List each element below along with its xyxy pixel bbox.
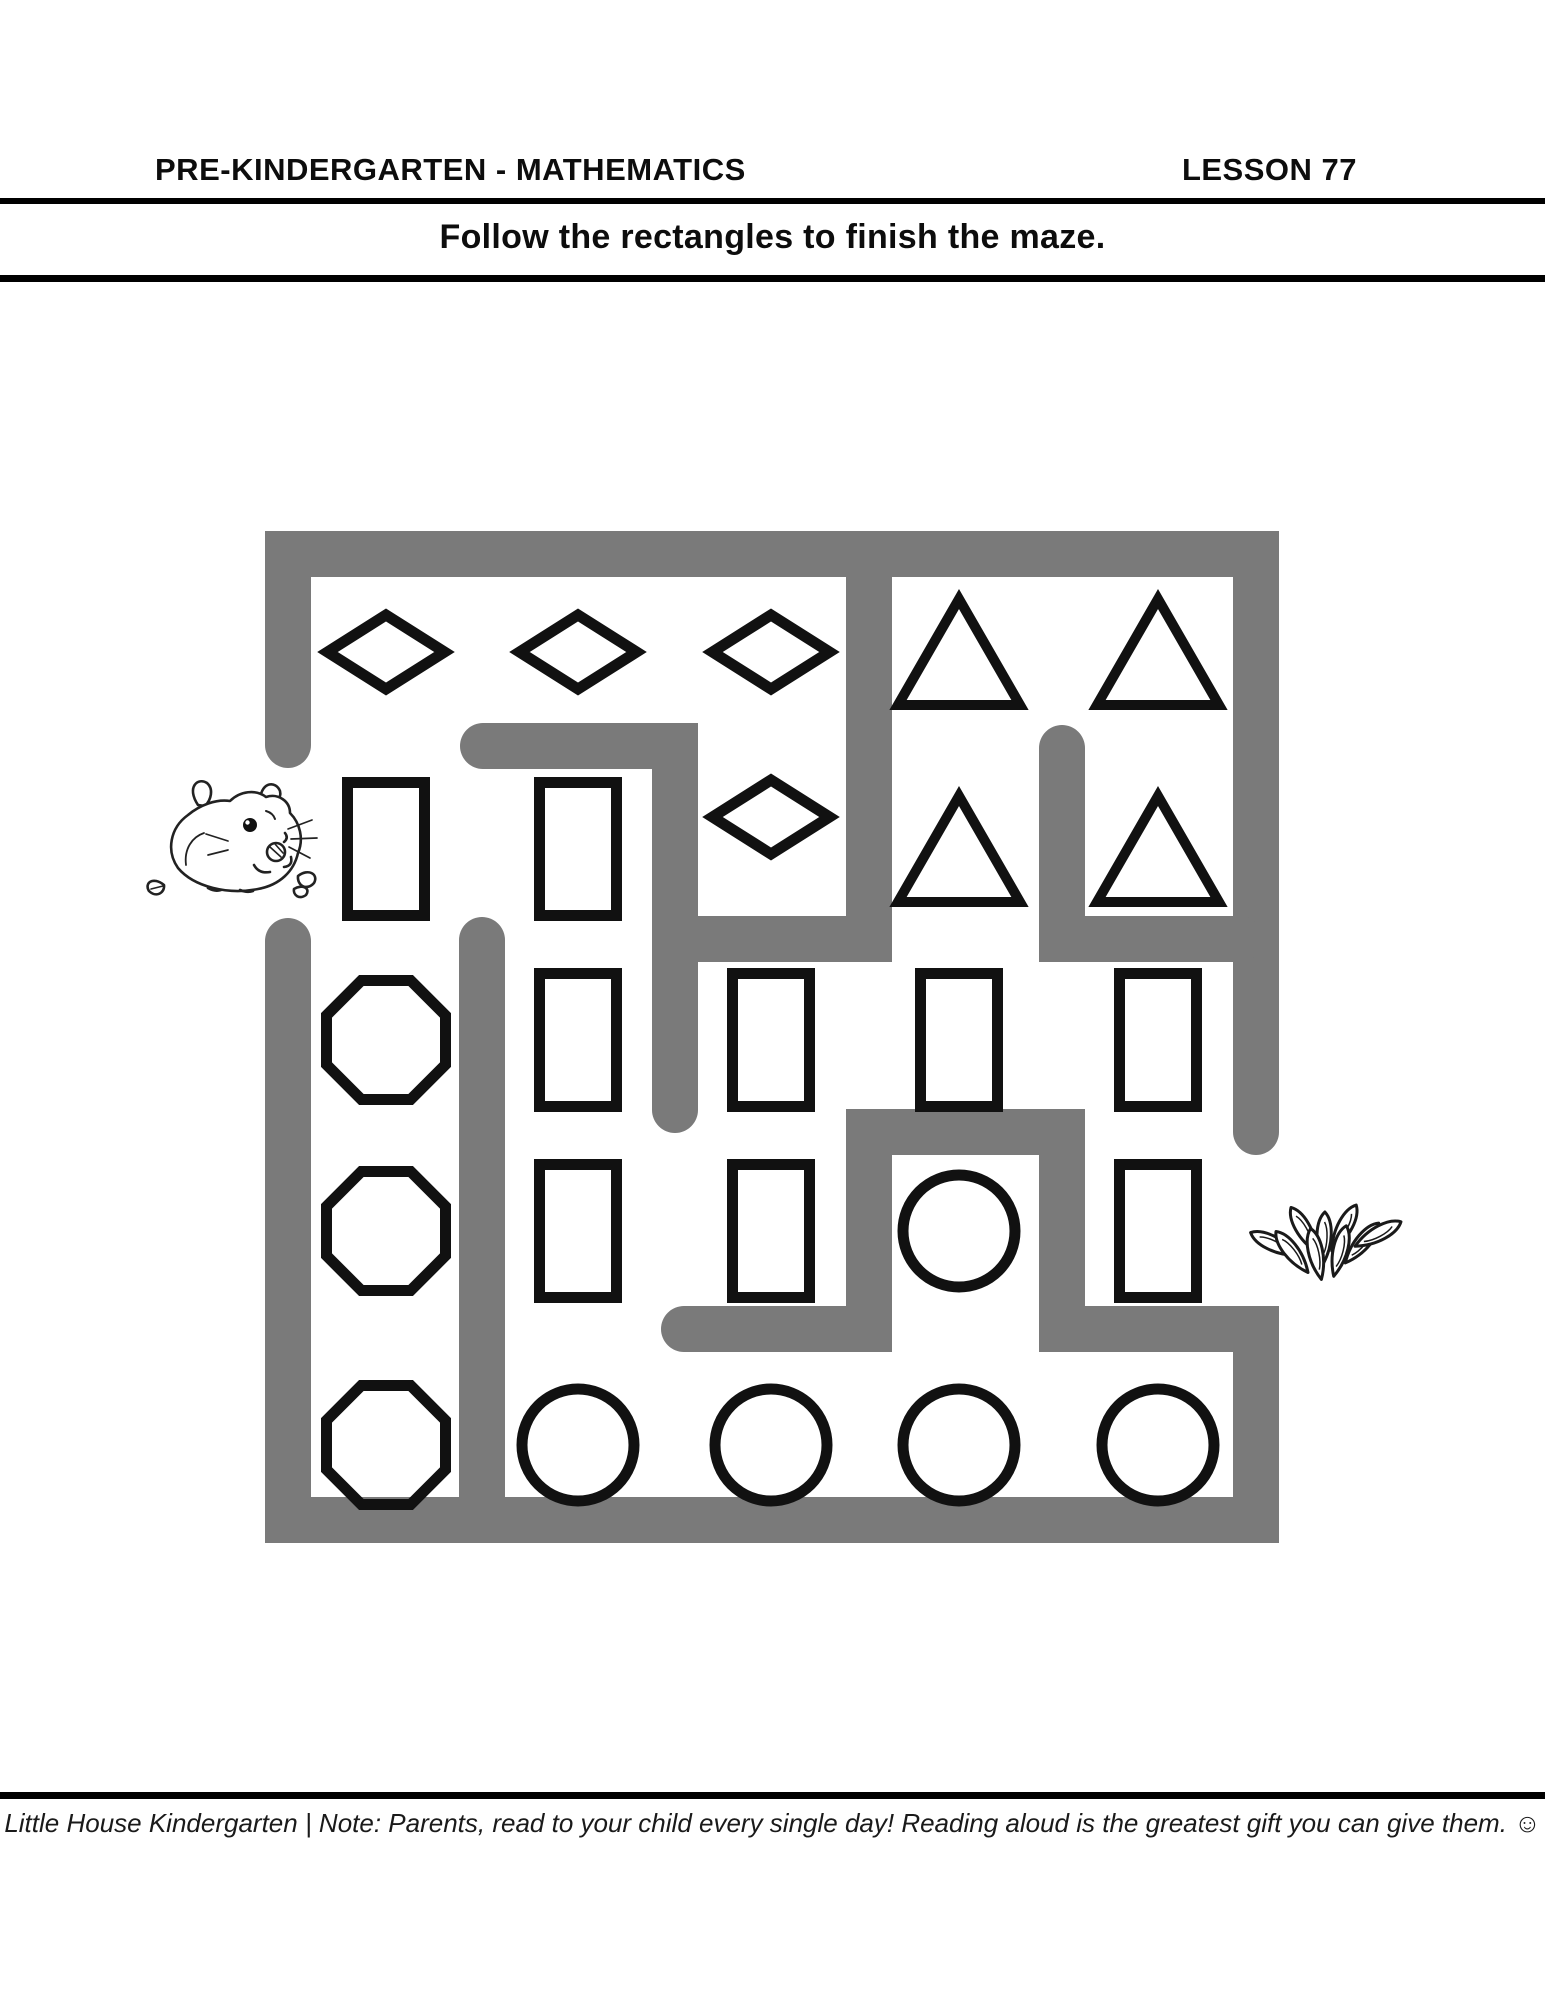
guinea-pig-icon [148,781,317,897]
maze-shape-rectangle [1120,974,1197,1107]
worksheet-page: PRE-KINDERGARTEN - MATHEMATICS LESSON 77… [0,0,1545,2000]
eye [243,818,257,832]
maze-wall-inner-top-L [483,746,675,1110]
maze-shape-circle [903,1389,1015,1501]
maze-shape-triangle [1097,599,1219,705]
body [171,792,301,891]
footer-note: Little House Kindergarten | Note: Parent… [0,1808,1545,1839]
maze-shape-rectangle [733,1165,810,1298]
maze-shape-circle [903,1175,1015,1287]
maze-shape-rectangle [540,1165,617,1298]
maze-shape-rectangle [1120,1165,1197,1298]
maze-shape-circle [715,1389,827,1501]
eye-glint [245,820,249,824]
maze [0,0,1545,2000]
maze-shape-diamond [713,615,830,689]
leaf-right-2 [294,887,308,897]
maze-shape-circle [522,1389,634,1501]
maze-shape-rectangle [921,974,998,1107]
maze-shape-octagon [327,1386,446,1505]
maze-shape-triangle [1097,796,1219,902]
maze-shape-rectangle [540,783,617,916]
maze-shape-octagon [327,1172,446,1291]
maze-shape-rectangle [540,974,617,1107]
maze-wall-inner-right-L [1062,748,1240,939]
leaf-right [298,872,315,887]
divider-footer [0,1792,1545,1799]
maze-shape-triangle [898,599,1020,705]
maze-shape-diamond [713,780,830,854]
maze-shape-diamond [328,615,445,689]
sunflower-seeds-icon [1248,1202,1405,1281]
maze-shape-octagon [327,981,446,1100]
maze-shape-rectangle [733,974,810,1107]
maze-shape-rectangle [348,783,425,916]
maze-wall-outer-bottom-and-inner-hook [288,941,1256,1520]
maze-shape-triangle [898,796,1020,902]
maze-shape-circle [1102,1389,1214,1501]
maze-shape-diamond [520,615,637,689]
